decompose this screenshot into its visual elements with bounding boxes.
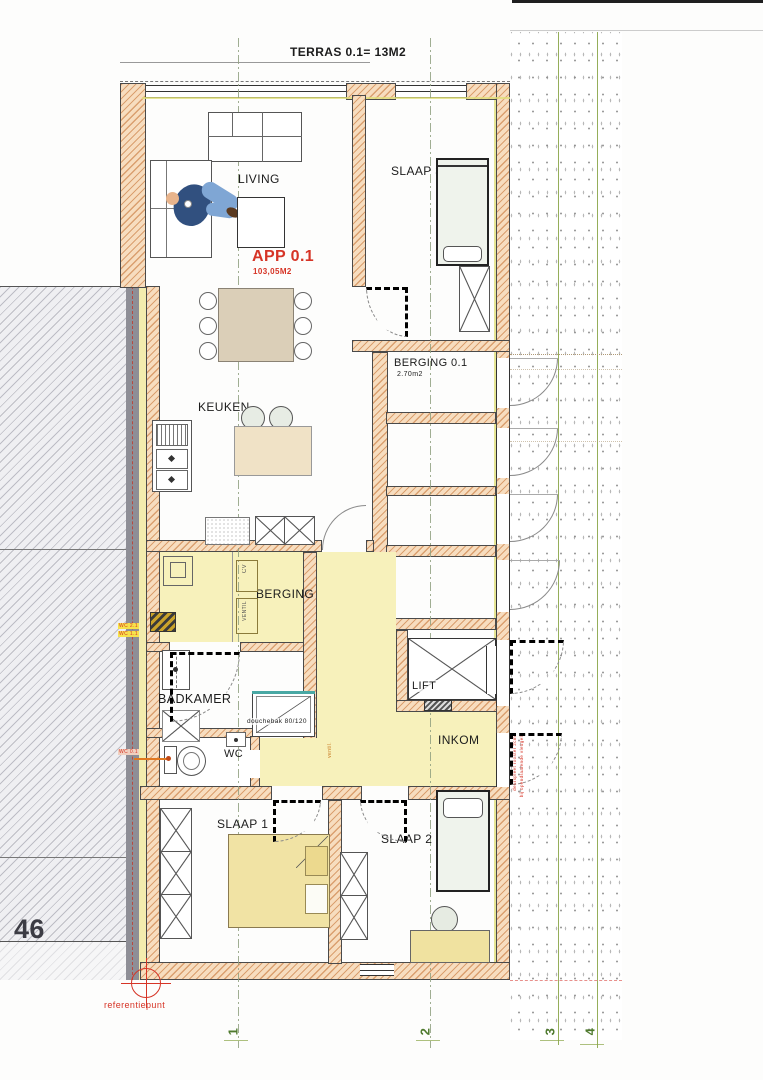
washing-machine-inner	[170, 562, 186, 578]
front-door-note-1: deurspleet rooster 2cm	[512, 736, 517, 791]
kitchen-island	[234, 426, 312, 476]
shower-diagonal	[256, 696, 311, 733]
grid-line-4	[597, 32, 598, 1048]
tv-cabinet	[208, 112, 302, 162]
hall-floor	[317, 552, 396, 712]
gallery-pink-dashed-line	[510, 980, 622, 981]
tv-cabinet-divider-2	[262, 112, 263, 162]
gallery-door-leaf-1	[510, 358, 558, 359]
grid-tick-3	[540, 1040, 564, 1041]
app-area-label: 103,05M2	[253, 267, 292, 276]
kitchen-drainer	[156, 424, 188, 446]
wall-bottom	[140, 962, 510, 980]
berging01-label: BERGING 0.1	[394, 357, 467, 369]
window-bottom	[360, 964, 394, 976]
inkom-label: INKOM	[438, 733, 479, 747]
shower-top-edge	[252, 691, 315, 694]
berging01-area-label: 2.70m2	[397, 371, 423, 378]
neighbour-building-hatch	[0, 286, 128, 942]
wall-storage-2	[386, 545, 496, 557]
berging-divider-line	[232, 552, 233, 642]
terras-dashed-line	[120, 81, 510, 82]
duct-label-wc11: WC 1.1	[118, 631, 139, 637]
douchebak-label: douchebak 80/120	[246, 718, 308, 725]
grid-label-1: 1	[225, 1028, 240, 1036]
page-edge-line	[512, 0, 763, 3]
wardrobe-slaap3	[459, 266, 490, 332]
referentiepunt-label: referentiepunt	[104, 1000, 165, 1010]
bed-slaap3-blanket-line	[438, 165, 487, 167]
wall-left-upper	[120, 83, 146, 288]
neighbour-building-hatch-lower	[0, 942, 128, 980]
neighbour-divider-line-2	[0, 857, 128, 858]
wardrobe-slaap1-1	[160, 808, 192, 853]
berging-label: BERGING	[256, 587, 314, 601]
neighbour-divider-line-1	[0, 549, 128, 550]
slaap2-door-arc	[360, 800, 407, 842]
gallery-dotted-line-1	[510, 354, 622, 355]
wall-berging-badkamer-b	[240, 642, 304, 652]
grid-label-4: 4	[582, 1028, 597, 1036]
slaap1-label: SLAAP 1	[217, 817, 268, 831]
tv-cabinet-divider-1	[232, 112, 233, 136]
dining-chair	[199, 342, 217, 360]
dining-table	[218, 288, 294, 362]
bed-slaap3-pillow	[443, 246, 482, 262]
grid-label-3: 3	[542, 1028, 557, 1036]
gallery-door-leaf-4	[510, 560, 560, 561]
dining-chair	[199, 317, 217, 335]
floor-plan-page: TERRAS 0.1= 13M2	[0, 0, 763, 1080]
wc-pointer-line	[134, 758, 170, 760]
hall-vent-note: ventil.	[327, 742, 333, 758]
sofa-back-line	[166, 161, 167, 257]
wall-storage-divider	[386, 486, 496, 496]
wall-bedrooms-a	[140, 786, 272, 800]
wall-above-lift	[386, 618, 496, 630]
bed-slaap1-pillow-1	[305, 846, 328, 876]
wall-keuken-hall-b	[366, 540, 374, 552]
wall-below-slaap3	[352, 340, 510, 352]
door-slot-berging01	[496, 358, 510, 408]
wc-door-opening	[250, 750, 260, 778]
living-label: LIVING	[238, 172, 280, 186]
duct-label-wc01: WC 0.1	[118, 749, 139, 755]
slaap3-door-arc	[366, 287, 408, 337]
inkom-floor	[317, 712, 496, 786]
grid-line-3	[558, 32, 559, 1045]
insulation-line-top	[142, 97, 510, 99]
door-slot-lift-corridor	[496, 640, 510, 706]
coffee-table	[237, 197, 285, 248]
kitchen-cabinet-1	[255, 516, 286, 545]
lobby-floor	[260, 738, 317, 786]
grid-tick-2	[416, 1040, 440, 1041]
wardrobe-slaap2-2	[340, 895, 368, 940]
dining-chair	[294, 342, 312, 360]
terras-label: TERRAS 0.1= 13M2	[290, 45, 406, 59]
lift-label: LIFT	[411, 680, 437, 692]
door-slot-storage-c	[496, 560, 510, 612]
wall-living-slaap3	[352, 95, 366, 287]
dining-chair	[294, 292, 312, 310]
duct-label-wc21: WC 2.1	[118, 623, 139, 629]
app-name-label: APP 0.1	[252, 248, 314, 266]
grid-label-2: 2	[417, 1028, 432, 1036]
wardrobe-slaap1-3	[160, 894, 192, 939]
cv-label: CV	[242, 564, 248, 573]
door-slot-storage-a	[496, 428, 510, 478]
bed-slaap2-pillow	[443, 798, 483, 818]
coffee-mug	[184, 200, 192, 208]
grid-tick-4	[580, 1044, 604, 1045]
gallery-door-leaf-2	[510, 428, 558, 429]
gallery-top-line	[510, 30, 763, 31]
desk-chair	[431, 906, 458, 933]
duct-hatch-box	[150, 612, 176, 632]
dining-chair	[294, 317, 312, 335]
wc-vent-dot	[234, 738, 238, 742]
grid-tick-1	[224, 1040, 248, 1041]
tv-cabinet-shelf-line	[208, 136, 302, 137]
wc-label: WC	[224, 748, 243, 760]
door-slot-inkom	[496, 733, 510, 787]
wardrobe-slaap2-1	[340, 852, 368, 897]
bed-slaap1-pillow-2	[305, 884, 328, 914]
kitchen-door-arc	[322, 505, 366, 550]
slaap3-label: SLAAP 3	[391, 164, 442, 178]
toilet-bowl-inner	[183, 752, 200, 770]
grid-axis-2	[430, 38, 431, 1048]
wc-pointer-dot	[166, 756, 171, 761]
gallery-door-leaf-3	[510, 494, 558, 495]
lift-counterweight	[424, 700, 452, 711]
person-head	[166, 192, 179, 205]
wall-left-lower	[146, 286, 160, 980]
parcel-number: 46	[14, 914, 45, 945]
wall-berging01-bottom	[386, 412, 496, 424]
kitchen-sink-unit	[205, 517, 250, 545]
dining-chair	[199, 292, 217, 310]
kitchen-cabinet-2	[284, 516, 315, 545]
front-door-note-2: bij opendraaiende vleugel	[519, 736, 524, 797]
wall-bedrooms-b	[322, 786, 362, 800]
desk-slaap2	[410, 930, 490, 963]
wardrobe-slaap1-2	[160, 851, 192, 896]
badkamer-door-arc	[170, 652, 240, 722]
terras-edge-line	[120, 62, 370, 63]
ventil-label: VENTIL	[242, 601, 248, 621]
door-slot-storage-b	[496, 494, 510, 544]
